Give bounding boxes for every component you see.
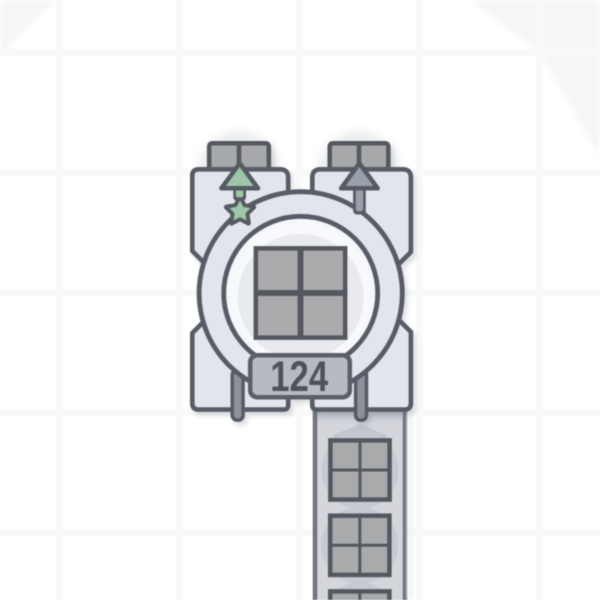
svg-text:124: 124 bbox=[270, 354, 328, 401]
